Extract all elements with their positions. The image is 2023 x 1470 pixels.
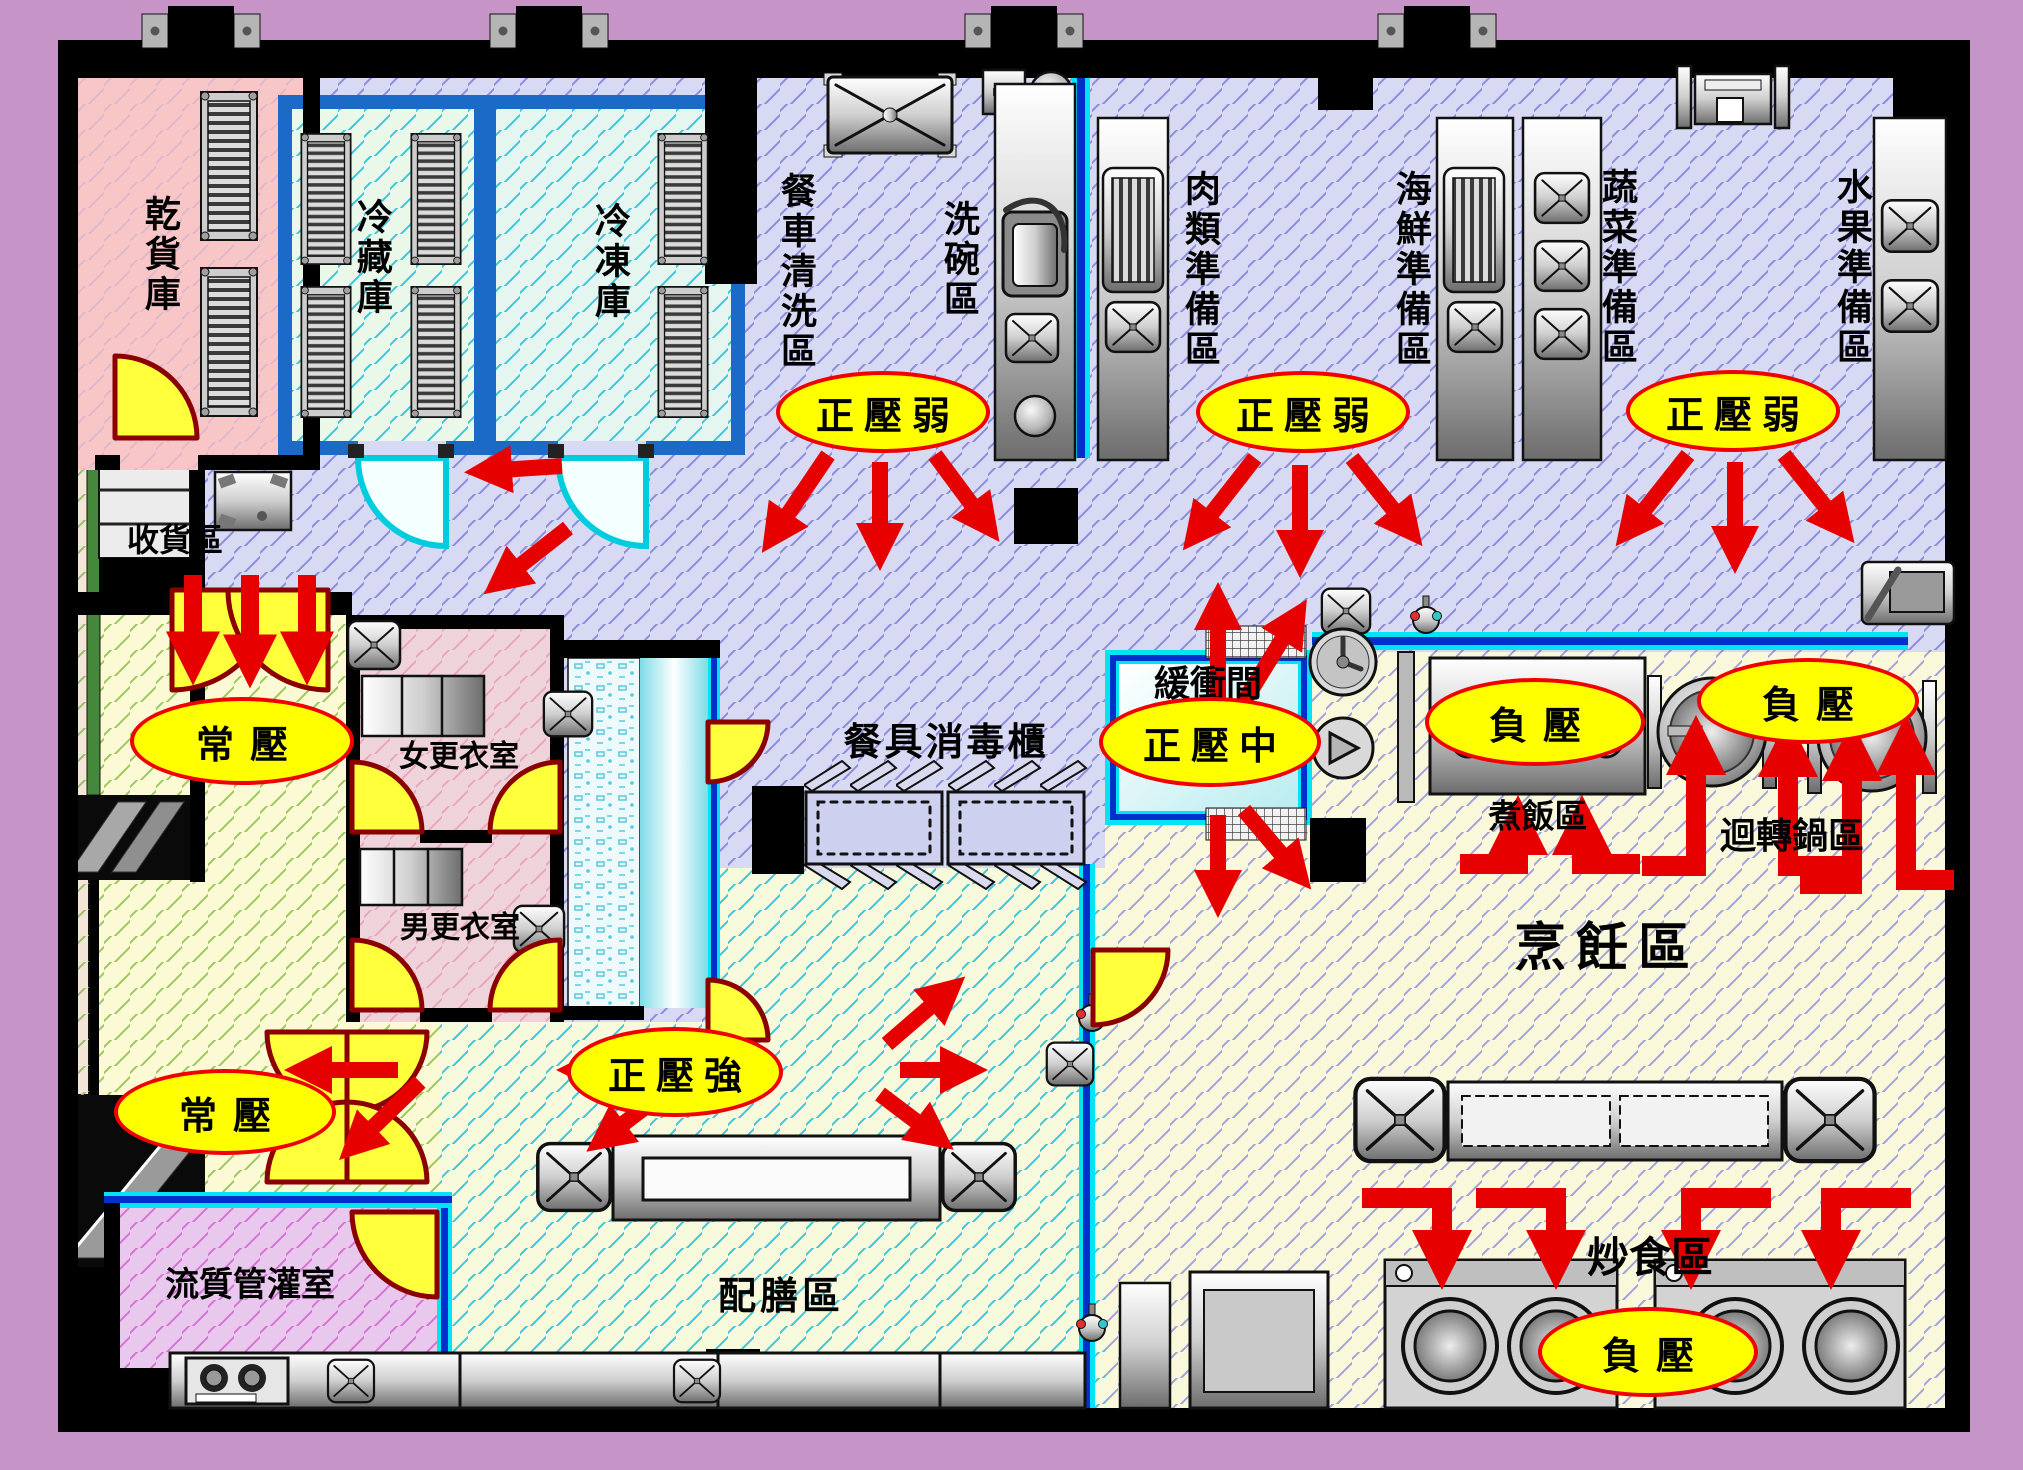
room-label-women-locker: 女更衣室 <box>399 741 519 773</box>
label-sterilizer-cabinet: 餐具消毒櫃 <box>843 724 1048 764</box>
room-label-dish-wash: 洗碗區 <box>940 200 978 320</box>
room-label-dry-storage: 乾貨庫 <box>141 195 179 315</box>
room-label-veg-prep: 蔬菜準備區 <box>1598 168 1636 368</box>
pressure-badge-normal-1: 常壓 <box>130 697 354 785</box>
room-label-men-locker: 男更衣室 <box>400 912 520 944</box>
room-label-meat-prep: 肉類準備區 <box>1181 170 1219 370</box>
room-label-receiving: 收貨區 <box>127 524 223 558</box>
pressure-badge-pos-strong: 正壓強 <box>567 1027 783 1117</box>
room-label-fruit-prep: 水果準備區 <box>1833 168 1871 368</box>
room-label-cold-storage: 冷藏庫 <box>353 198 391 318</box>
pressure-badge-pos-mid: 正壓中 <box>1099 697 1321 787</box>
room-label-cooking: 烹飪區 <box>1514 922 1700 977</box>
room-label-stir-fry: 炒食區 <box>1587 1236 1713 1280</box>
room-label-cart-wash: 餐車清洗區 <box>777 172 815 372</box>
room-label-tube-feeding: 流質管灌室 <box>165 1268 335 1304</box>
pressure-badge-neg-2: 負壓 <box>1697 658 1919 744</box>
room-label-rice-cooking: 煮飯區 <box>1489 800 1588 835</box>
room-label-seafood-prep: 海鮮準備區 <box>1392 170 1430 370</box>
pressure-badge-pos-weak-1: 正壓弱 <box>776 371 990 453</box>
kitchen-airflow-floorplan: 乾貨庫 冷藏庫 冷凍庫 餐車清洗區 洗碗區 肉類準備區 海鮮準備區 蔬菜準備區 … <box>0 0 2023 1470</box>
pressure-badge-neg-1: 負壓 <box>1425 678 1645 766</box>
pressure-badge-normal-2: 常壓 <box>114 1069 336 1155</box>
pressure-badge-pos-weak-2: 正壓弱 <box>1196 371 1410 453</box>
room-label-plating: 配膳區 <box>718 1278 844 1318</box>
pressure-badge-pos-weak-3: 正壓弱 <box>1626 370 1840 452</box>
pressure-badge-neg-3: 負壓 <box>1538 1307 1758 1397</box>
room-label-freezer: 冷凍庫 <box>591 202 629 322</box>
room-label-rotary-pot: 迴轉鍋區 <box>1720 817 1864 855</box>
